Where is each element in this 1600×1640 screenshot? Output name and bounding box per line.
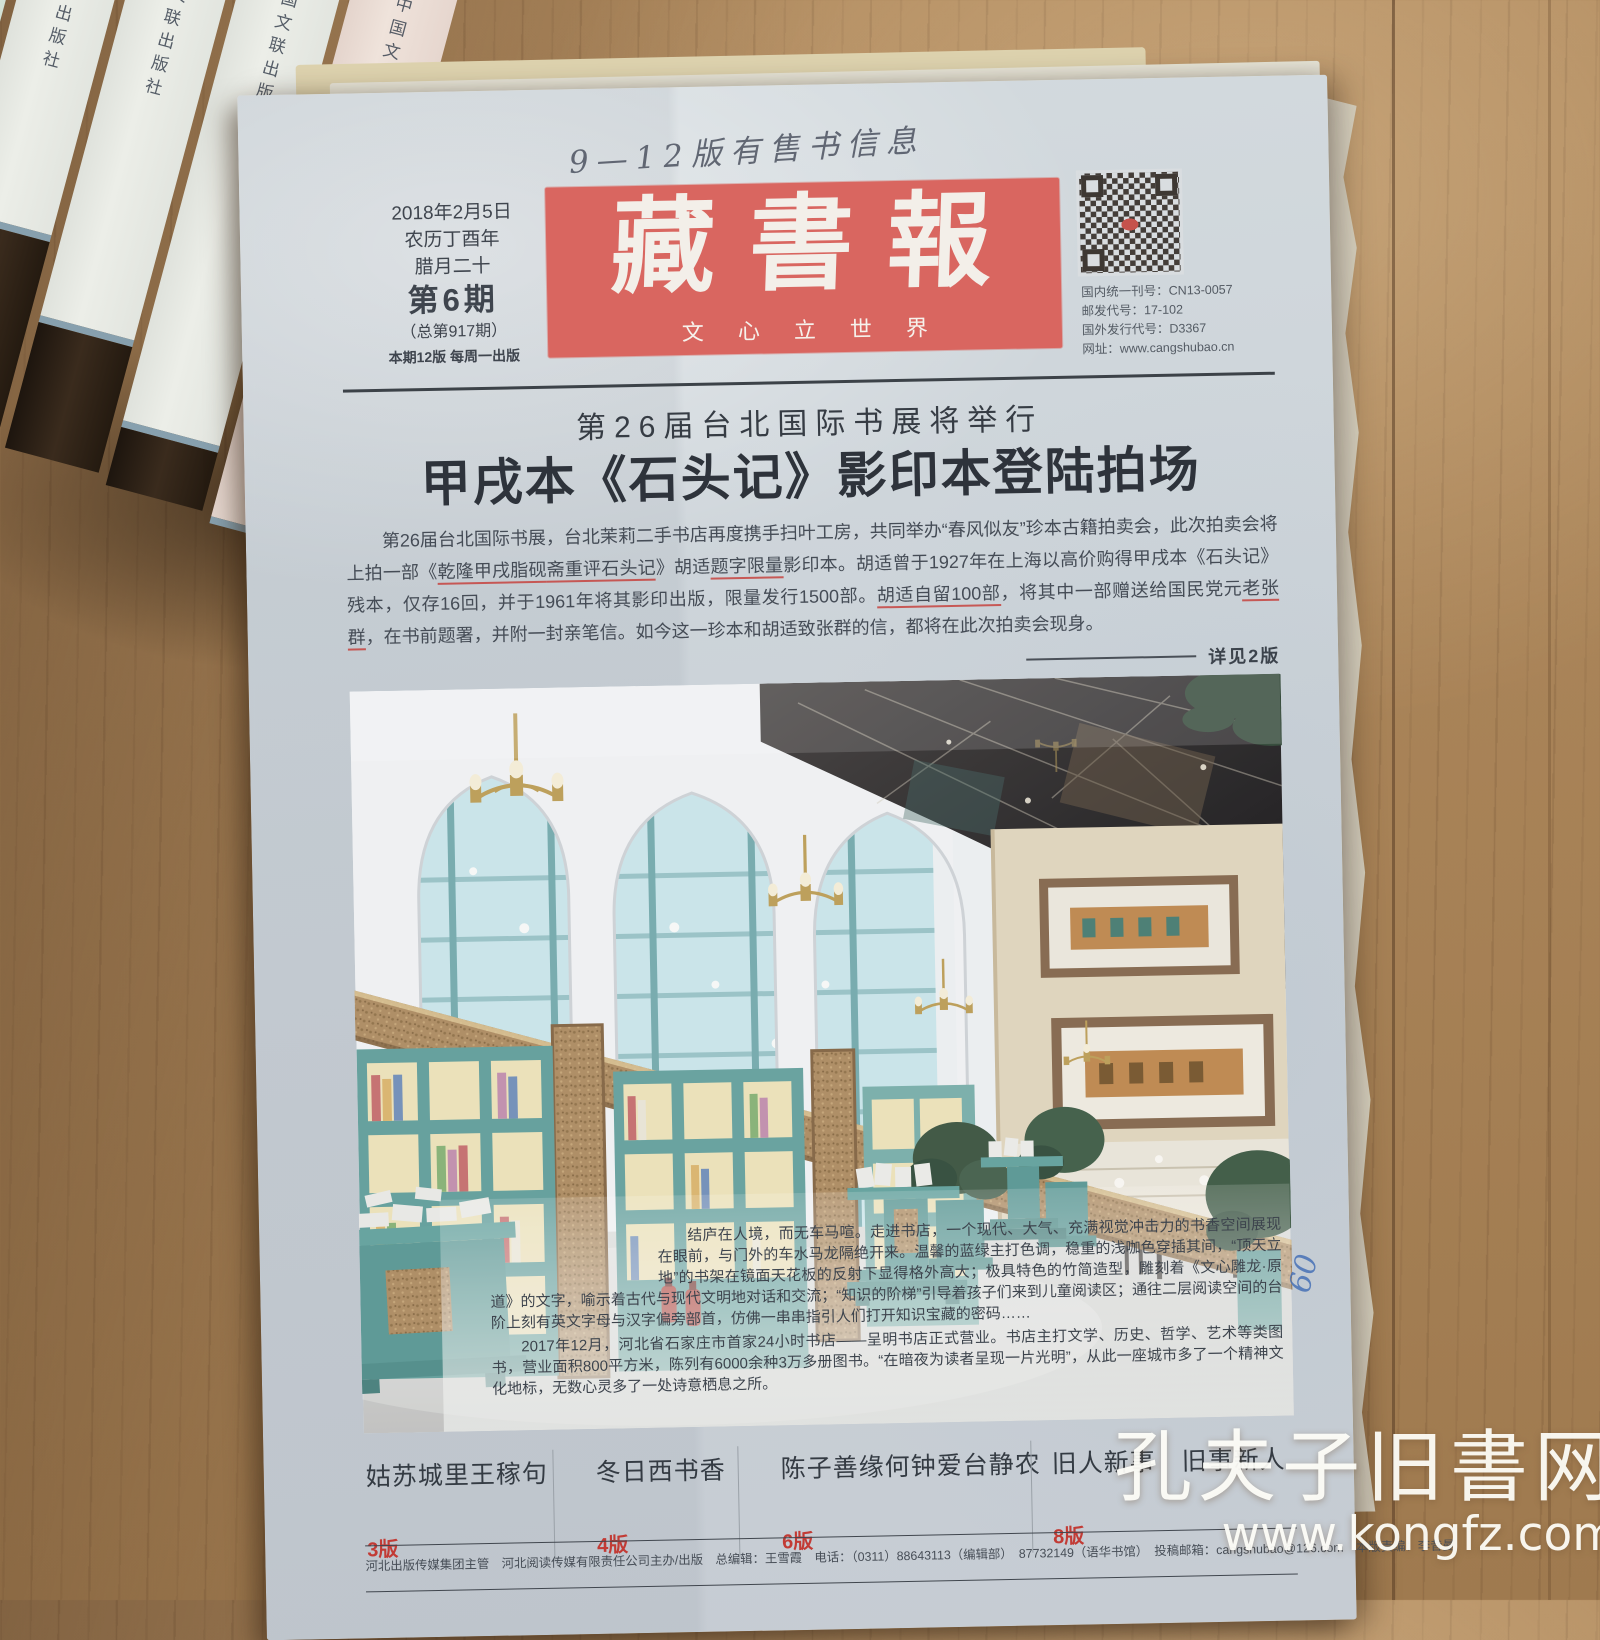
caption-wrap-spacer: [489, 1226, 658, 1273]
newspaper-front-page: 9—12版有售书信息 2018年2月5日 农历丁酉年 腊月二十 第6期 （总第9…: [237, 75, 1356, 1640]
lunar-day: 腊月二十: [362, 252, 542, 282]
qr-code: [1079, 172, 1181, 274]
book-spine-label: 中国文联出版社: [136, 0, 204, 104]
calligraphy-plaque: [1056, 1019, 1270, 1125]
issue-date: 2018年2月5日: [361, 198, 541, 228]
teaser-item: 姑苏城里王稼句3版: [363, 1450, 554, 1566]
masthead-title: 藏書報: [544, 180, 1062, 308]
book-spine-label: 中国文联出版社: [34, 0, 102, 77]
issue-number: 第6期: [363, 279, 544, 322]
issue-info-block: 2018年2月5日 农历丁酉年 腊月二十 第6期 （总第917期） 本期12版 …: [361, 198, 544, 370]
teaser-title: 冬日西书香: [595, 1450, 738, 1489]
watermark-site-name: 孔夫子旧書网: [1114, 1428, 1600, 1508]
handwritten-margin-number: 09: [1280, 1250, 1323, 1295]
teaser-title: 陈子善缘何钟爱台静农: [780, 1445, 1031, 1486]
teaser-item: 冬日西书香4版: [552, 1446, 739, 1562]
story-body: 第26届台北国际书展，台北茉莉二手书店再度携手扫叶工房，共同举办“春风似友”珍本…: [346, 508, 1280, 654]
teaser-item: 陈子善缘何钟爱台静农6版: [737, 1441, 1032, 1559]
footer-rule-bottom: [366, 1574, 1298, 1593]
kongfz-watermark: 孔夫子旧書网 www.kongfz.com: [1114, 1428, 1600, 1562]
total-issue-number: （总第917期）: [364, 319, 544, 346]
calligraphy-plaque: [1044, 880, 1236, 974]
lunar-year: 农历丁酉年: [362, 225, 542, 255]
website: 网址：www.cangshubao.cn: [1082, 336, 1312, 359]
bookstore-photo: 结庐在人境，而无车马喧。走进书店，一个现代、大气、充满视觉冲击力的书香空间展现在…: [349, 674, 1295, 1434]
floor-plank-seam: [1548, 0, 1551, 1600]
header-rule: [343, 372, 1275, 393]
teaser-title: 姑苏城里王稼句: [365, 1454, 553, 1494]
masthead-tagline: 文心立世界: [548, 308, 1063, 350]
masthead-banner: 藏書報 文心立世界: [545, 178, 1062, 358]
pages-note: 本期12版 每周一出版: [364, 343, 544, 370]
floor-plank-seam: [1392, 0, 1395, 1600]
publication-codes: 国内统一刊号：CN13-0057 邮发代号：17-102 国外发行代号：D336…: [1081, 279, 1312, 359]
handwritten-note: 9—12版有售书信息: [567, 115, 925, 182]
watermark-site-url: www.kongfz.com: [1114, 1508, 1600, 1562]
see-more-dash: [1026, 655, 1196, 660]
see-more-label: 详见2版: [1208, 642, 1281, 669]
photo-caption: 结庐在人境，而无车马喧。走进书店，一个现代、大气、充满视觉冲击力的书香空间展现在…: [489, 1214, 1284, 1400]
